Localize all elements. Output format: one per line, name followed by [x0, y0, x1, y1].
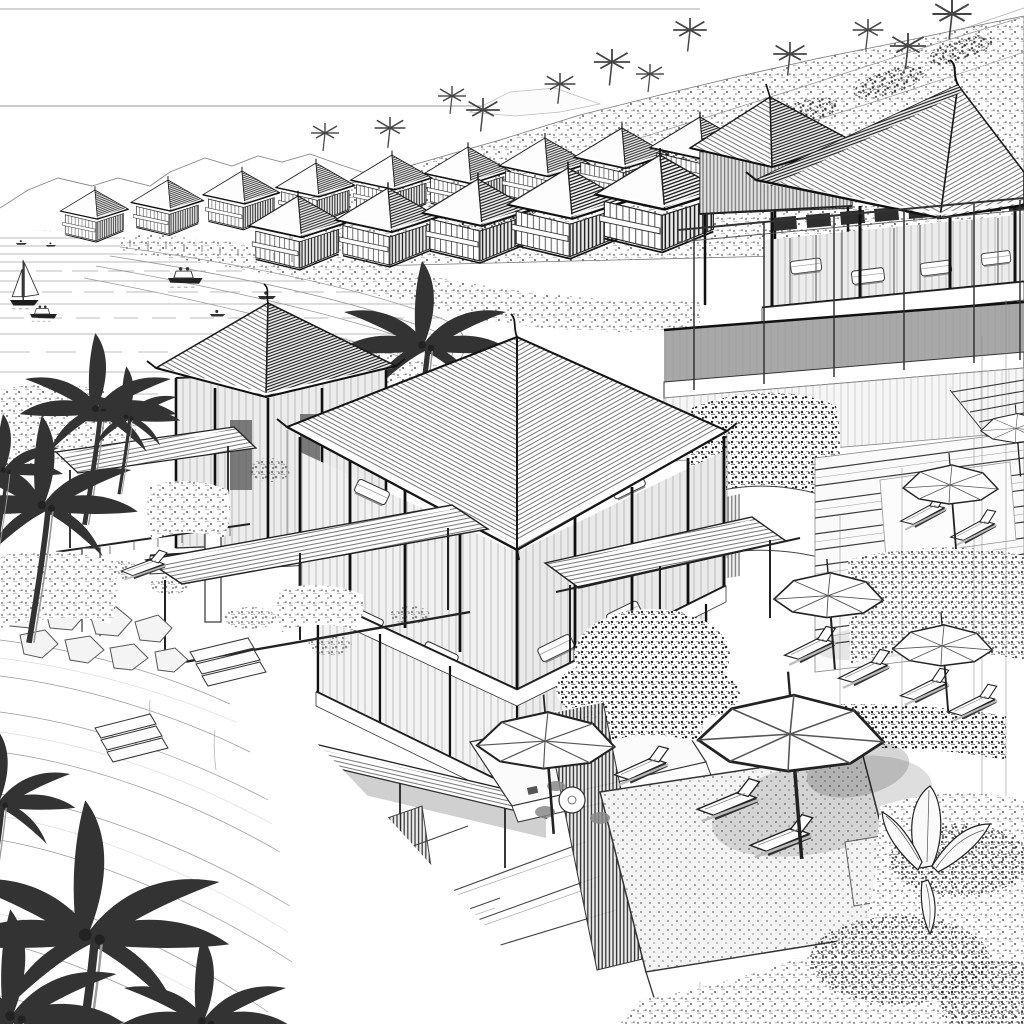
shore-shrubs [0, 551, 117, 628]
sketch-canvas: Tropical hillside beach resort — archite… [0, 0, 1024, 1024]
shrub-bed [147, 481, 230, 540]
resort-sketch-svg: Tropical hillside beach resort — archite… [0, 0, 1024, 1024]
tower-interior-scribble [250, 458, 290, 482]
